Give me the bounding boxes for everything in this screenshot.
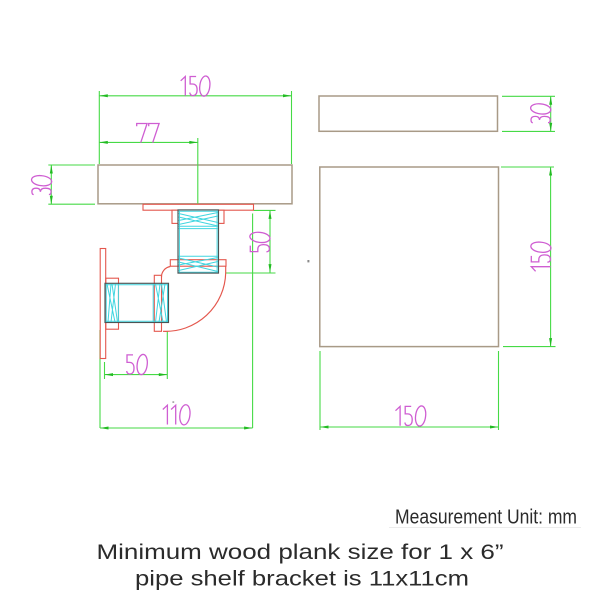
svg-text:Minimum wood plank size for 1: Minimum wood plank size for 1 x 6” [97, 540, 504, 564]
svg-text:pipe shelf bracket is 11x11cm: pipe shelf bracket is 11x11cm [135, 567, 469, 591]
svg-text:Measurement Unit: mm: Measurement Unit: mm [395, 505, 577, 528]
